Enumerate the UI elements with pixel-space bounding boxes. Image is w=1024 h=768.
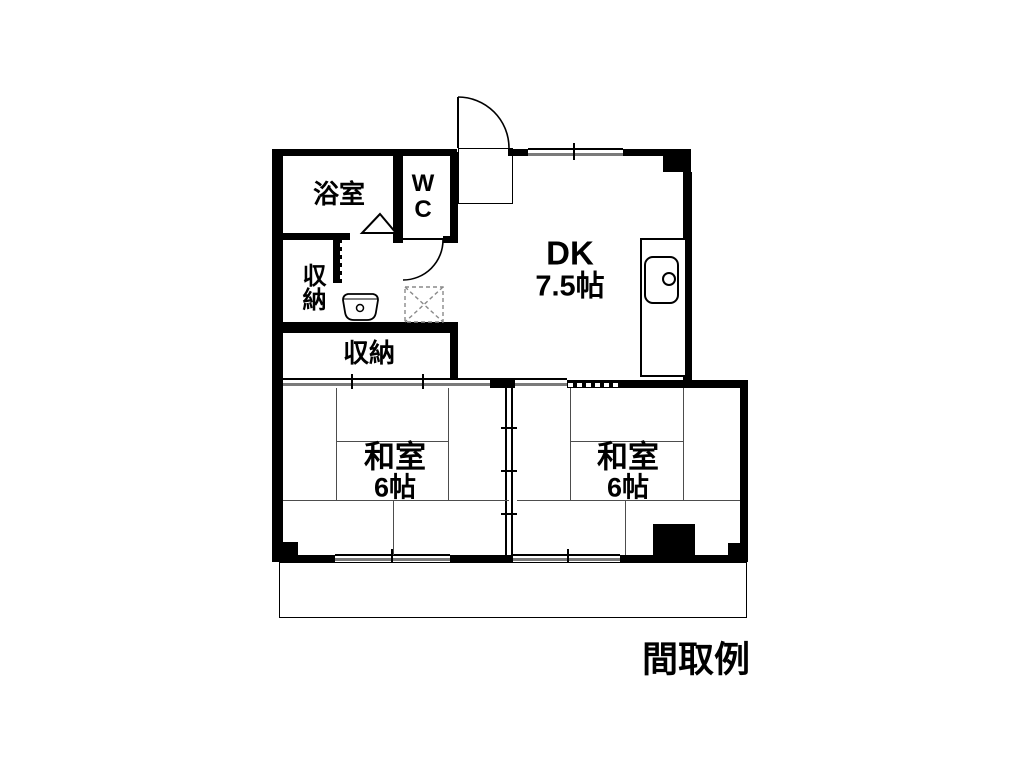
bathroom-label: 浴室	[313, 180, 365, 208]
kitchen-sink-icon	[645, 257, 678, 303]
storage-lower-label: 収納	[343, 339, 395, 367]
floor-plan: 浴室 WC DK 7.5帖 収納 収納 和室 6帖 和室 6帖 間取例	[0, 0, 1024, 768]
dk-label: DK	[535, 236, 604, 272]
storage-upper-label: 収納	[298, 263, 324, 311]
wc-door-icon	[403, 239, 443, 280]
plan-caption: 間取例	[642, 641, 750, 680]
washing-machine-space-icon	[405, 287, 443, 322]
washbasin-icon	[343, 294, 378, 320]
washitsu-right-size-label: 6帖	[597, 474, 659, 503]
washitsu-right-label-group: 和室 6帖	[597, 441, 659, 504]
plan-symbols-layer	[0, 0, 1024, 768]
washitsu-left-label: 和室	[364, 441, 426, 474]
washitsu-left-label-group: 和室 6帖	[364, 441, 426, 504]
wc-label: WC	[408, 171, 438, 223]
entrance-door-icon	[458, 97, 509, 148]
washitsu-right-label: 和室	[597, 441, 659, 474]
washitsu-left-size-label: 6帖	[364, 474, 426, 503]
dk-label-group: DK 7.5帖	[535, 236, 604, 303]
bathroom-door-icon	[362, 214, 396, 233]
dk-size-label: 7.5帖	[535, 271, 604, 302]
